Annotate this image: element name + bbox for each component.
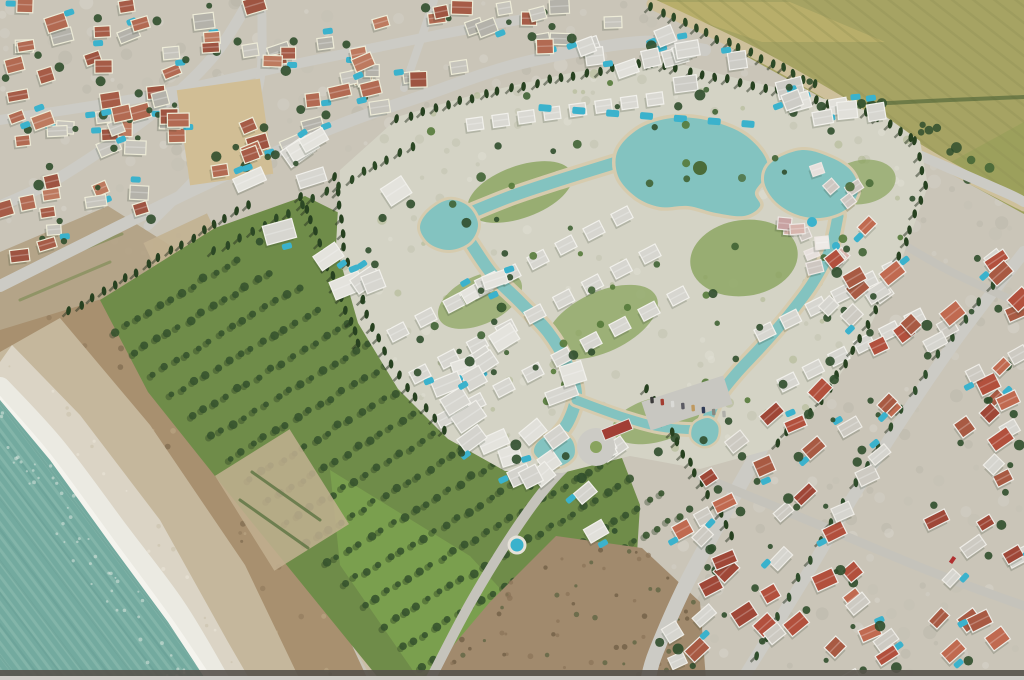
aerial-photo: [0, 0, 1024, 680]
bottom-border-light: [0, 676, 1024, 680]
construction-pool: [807, 217, 817, 227]
screenshot: [0, 0, 1024, 680]
lagoon-island: [738, 174, 746, 182]
roundabout-green: [590, 441, 602, 453]
lagoon-main-pool: [615, 117, 768, 216]
bottom-border-dark: [0, 670, 1024, 676]
lagoon-island: [693, 161, 707, 175]
kidney-pool: [509, 537, 525, 553]
